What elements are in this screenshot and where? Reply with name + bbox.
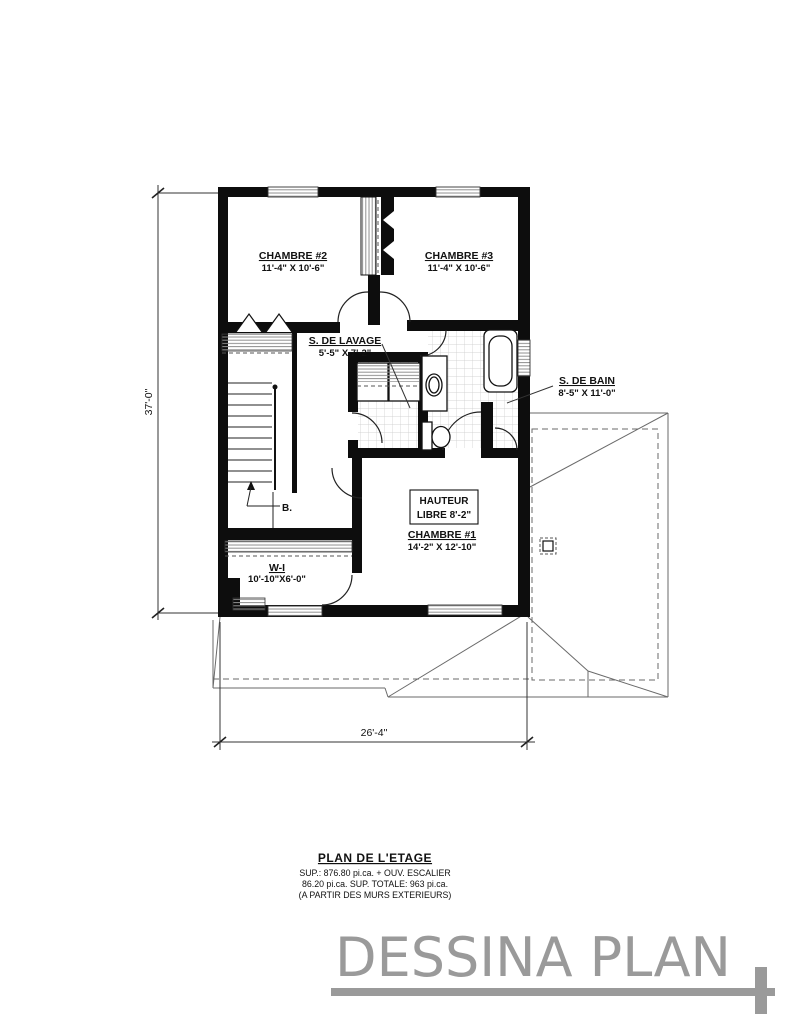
plan-title: PLAN DE L'ETAGE (318, 851, 432, 865)
plan-area-line2: 86.20 pi.ca. SUP. TOTALE: 963 pi.ca. (302, 879, 448, 889)
room-label-walkin: W-I (269, 562, 285, 574)
shelf-walkin (233, 598, 265, 610)
staircase (228, 383, 280, 528)
closet-shelf-chambre2 (222, 334, 292, 351)
room-label-lavage: S. DE LAVAGE (309, 335, 382, 347)
room-dims-chambre3: 11'-4" X 10'-6" (428, 263, 491, 274)
room-label-bain: S. DE BAIN (559, 375, 615, 387)
dimension-height-label: 37'-0" (143, 388, 155, 415)
room-dims-chambre1: 14'-2" X 12'-10" (408, 542, 476, 553)
window-top-left (268, 187, 318, 197)
stairs-down-label: B. (282, 503, 292, 514)
room-label-chambre1: CHAMBRE #1 (408, 529, 476, 541)
dimension-width-label: 26'-4" (361, 727, 388, 739)
ceiling-height-note: HAUTEUR LIBRE 8'-2" (410, 490, 478, 524)
ceiling-height-line2: LIBRE 8'-2" (417, 510, 472, 521)
plan-area-line3: (A PARTIR DES MURS EXTERIEURS) (299, 890, 452, 900)
ceiling-height-line1: HAUTEUR (420, 496, 470, 507)
plan-area-line1: SUP.: 876.80 pi.ca. + OUV. ESCALIER (299, 868, 450, 878)
window-bottom-right (428, 605, 502, 615)
logo-plus-icon (755, 967, 767, 1014)
laundry-appliances (357, 363, 420, 401)
room-dims-bain: 8'-5" X 11'-0" (558, 388, 615, 399)
title-block: PLAN DE L'ETAGE SUP.: 876.80 pi.ca. + OU… (299, 851, 452, 900)
closet-rod-walkin (225, 541, 352, 552)
room-dims-lavage: 5'-5" X 7'-2" (319, 348, 372, 359)
window-bottom-left (268, 606, 322, 616)
room-label-chambre2: CHAMBRE #2 (259, 250, 327, 262)
floor-plan-drawing: 37'-0" 26'-4" (0, 0, 791, 1024)
room-dims-chambre2: 11'-4" X 10'-6" (262, 263, 325, 274)
logo-underline (331, 988, 775, 996)
window-top-right (436, 187, 480, 197)
logo: DESSINA PLAN (331, 926, 775, 1014)
room-label-chambre3: CHAMBRE #3 (425, 250, 493, 262)
center-closet (361, 197, 378, 275)
toilet (422, 422, 432, 450)
room-dims-walkin: 10'-10"X6'-0" (248, 574, 306, 585)
window-right-bath (518, 340, 530, 376)
floor-plan-page: 37'-0" 26'-4" (0, 0, 791, 1024)
logo-text: DESSINA PLAN (335, 926, 731, 989)
